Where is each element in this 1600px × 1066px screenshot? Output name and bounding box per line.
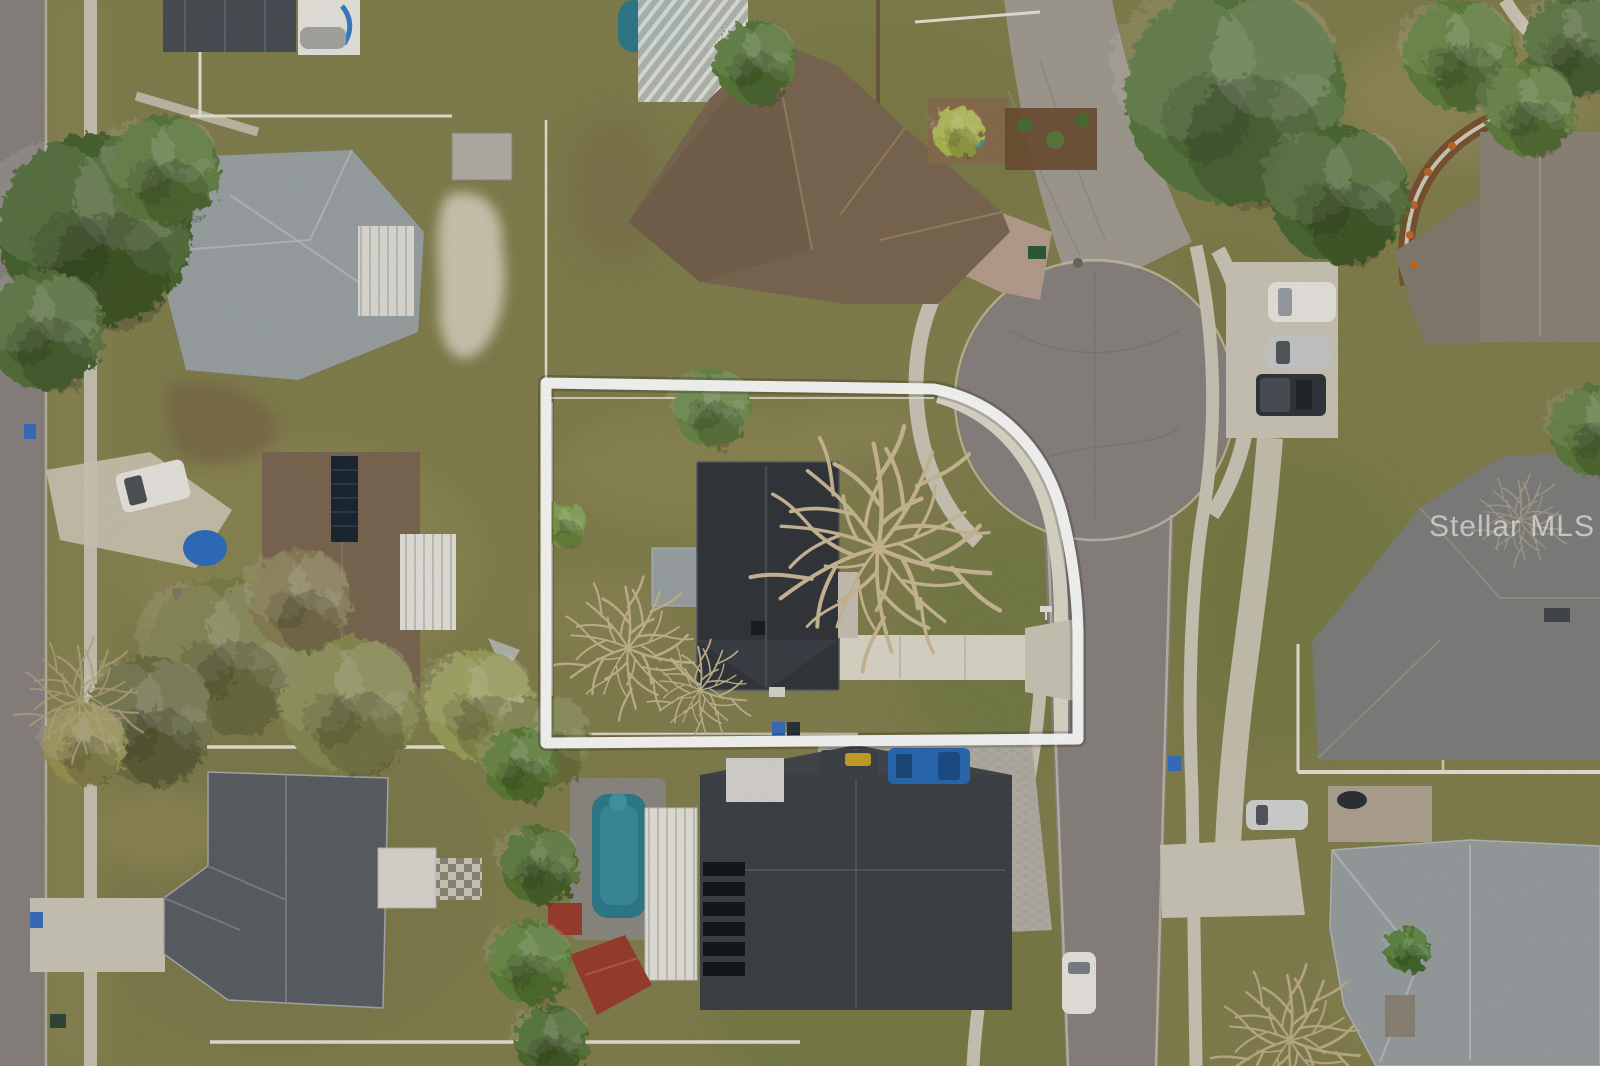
photo-grain bbox=[0, 0, 1600, 1066]
aerial-photo-stage: Stellar MLS bbox=[0, 0, 1600, 1066]
mls-watermark: Stellar MLS bbox=[1429, 510, 1595, 544]
aerial-photo bbox=[0, 0, 1600, 1066]
